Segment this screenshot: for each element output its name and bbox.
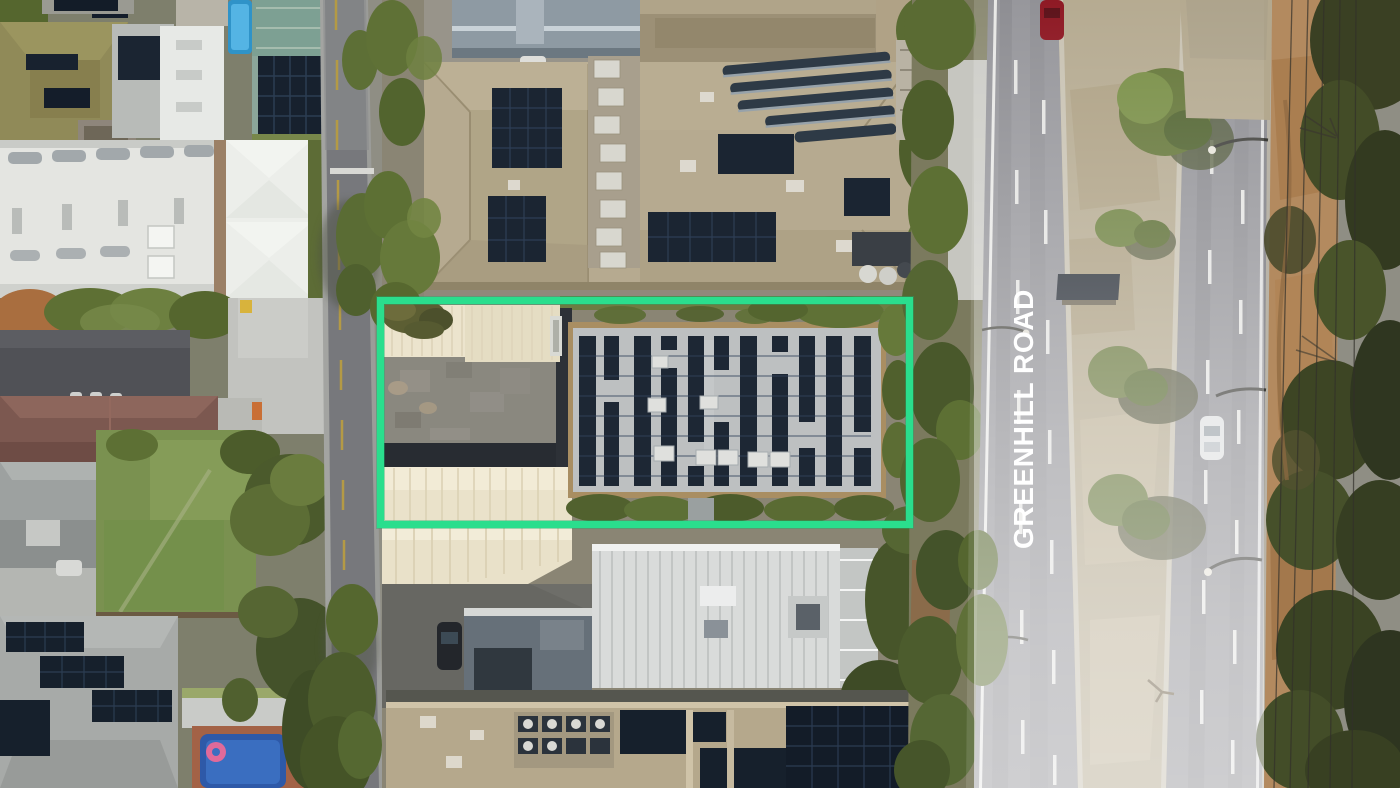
svg-text:GREENHILL ROAD: GREENHILL ROAD: [1008, 289, 1039, 549]
